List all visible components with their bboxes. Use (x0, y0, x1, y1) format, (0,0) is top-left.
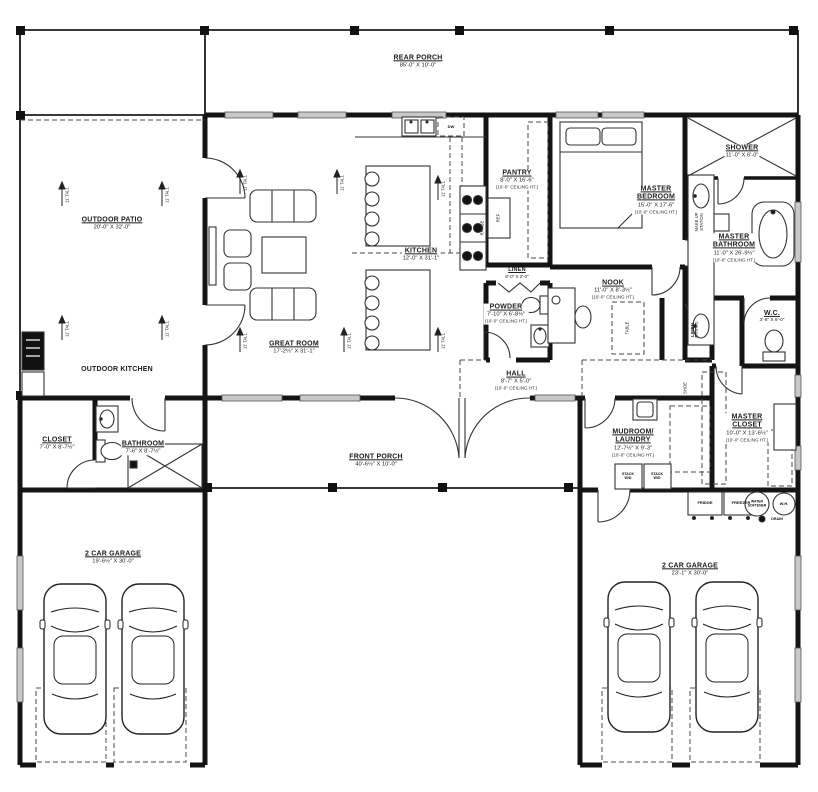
room-name: SHOWER (726, 144, 759, 152)
water-softener-label: WATER SOFTENER (747, 500, 768, 507)
room-dims: 20'-0" X 32'-0" (82, 225, 143, 232)
room-dims: 11'-0" X 6'-0" (726, 153, 759, 160)
stack-wd-label-1: STACK W/D (618, 473, 638, 481)
room-name: MASTER BATHROOM (711, 233, 757, 250)
room-note: (10'-0" CEILING HT.) (496, 185, 539, 191)
dishwasher-label: DW (448, 125, 455, 129)
height-marker-label: 11' TALL (66, 321, 71, 337)
room-dims: 11'-0" X 26'-9½" (711, 250, 757, 257)
plan-linework (0, 0, 818, 792)
room-label-closet: CLOSET 7'-0" X 8'-7½" (38, 436, 75, 451)
room-name: LINEN (505, 267, 528, 274)
sofa (250, 190, 316, 222)
fixture-label: RANGE (480, 221, 485, 236)
armchair (224, 230, 251, 257)
height-marker-label: 11' TALL (341, 175, 346, 191)
room-dims: 12'-0" X 31'-1" (403, 256, 440, 263)
room-name: SHOE (683, 382, 688, 394)
room-label-hall: HALL 8'-7" X 5'-0" (10'-0" CEILING HT.) (494, 371, 539, 392)
room-label-master-bathroom: MASTER BATHROOM 11'-0" X 26'-9½" (10'-0"… (710, 233, 758, 262)
desk-plant (552, 296, 560, 304)
room-note: (10'-0" CEILING HT.) (711, 257, 757, 263)
marker-text: 11' TALL (65, 321, 70, 337)
height-marker-label: 11' TALL (166, 187, 171, 203)
fixture-label: DW (448, 124, 455, 129)
room-label-master-closet: MASTER CLOSET 10'-0" X 13'-6½" (10'-0" C… (723, 413, 771, 442)
room-dims: 8'-0" X 16'-6" (496, 178, 539, 185)
room-dims: 3'-0 X 6'-0 (695, 321, 699, 338)
room-dims: 8'-7" X 5'-0" (495, 379, 538, 386)
armchair (224, 263, 251, 290)
room-name: OUTDOOR KITCHEN (81, 366, 153, 374)
fixture-label: REF (496, 214, 501, 222)
marker-text: 11' TALL (347, 333, 352, 349)
marker-text: 11' TALL (165, 321, 170, 337)
room-dims: 7'-6" X 8'-7½" (122, 449, 164, 456)
makeup-seat (714, 214, 729, 231)
room-dims: 40'-6½" X 10'-0" (349, 462, 403, 469)
room-dims: 10'-0" X 13'-6½" (724, 430, 770, 437)
pillow (566, 128, 600, 145)
water-heater-label: W.H. (780, 502, 789, 506)
room-dims: 8'-0" X 2'-0" (505, 274, 528, 279)
room-name: 2 CAR GARAGE (662, 562, 718, 570)
outdoor-counter (22, 372, 44, 396)
room-dims: 3'-6" X 6'-0" (760, 318, 785, 324)
furniture (22, 117, 796, 522)
room-label-linen: LINEN 8'-0" X 2'-0" (504, 267, 529, 279)
entry-double-door (395, 398, 530, 458)
room-label-mudroom: MUDROOM/ LAUNDRY 12'-7½" X 9'-3" (10'-0"… (608, 428, 658, 457)
grill (22, 332, 44, 370)
room-name: REAR PORCH (393, 54, 442, 62)
room-dims: 12'-7½" X 9'-3" (609, 445, 657, 452)
room-dims: 15'-0" X 17'-6" (633, 202, 679, 209)
room-dims: 19'-6½" X 30'-0" (85, 559, 141, 566)
desk (548, 288, 575, 343)
stack-wd-label-2: STACK W/D (647, 473, 667, 481)
room-note: (10'-0" CEILING HT.) (724, 437, 770, 443)
height-marker-label: 11' TALL (166, 321, 171, 337)
pillow (602, 128, 636, 145)
room-name: MUDROOM/ LAUNDRY (609, 428, 657, 445)
floor-plan: REAR PORCH 85'-0" X 10'-0" OUTDOOR PATIO… (0, 0, 818, 792)
marker-text: 11' TALL (165, 187, 170, 203)
shoe-label: SHOE (684, 382, 689, 394)
height-marker-label: 11' TALL (348, 333, 353, 349)
room-note: (10'-0" CEILING HT.) (495, 386, 538, 392)
room-name: KITCHEN (403, 247, 440, 255)
room-note: (10'-0" CEILING HT.) (485, 319, 528, 325)
closet-shelf (774, 404, 796, 450)
sofa (250, 288, 316, 320)
room-name: OUTDOOR PATIO (82, 216, 143, 224)
room-label-powder: POWDER 7'-10" X 6'-8½" (10'-0" CEILING H… (484, 304, 529, 325)
toilet-tank (763, 352, 785, 361)
room-dims: 17'-2½" X 31'-1" (269, 349, 319, 356)
marker-text: 11' TALL (441, 333, 446, 349)
room-label-shower: SHOWER 11'-0" X 6'-0" (725, 144, 760, 159)
makeup-station-label: MAKE UP STATION (695, 205, 705, 239)
desk-chair (575, 306, 591, 328)
room-label-master-bedroom: MASTER BEDROOM 15'-0" X 17'-6" (10'-0" C… (632, 185, 680, 214)
toilet (101, 443, 123, 460)
room-label-kitchen: KITCHEN 12'-0" X 31'-1" (402, 247, 441, 262)
room-label-garage-right: 2 CAR GARAGE 23'-1" X 30'-0" (661, 562, 719, 577)
linen-closet-label: LINEN 3'-0 X 6'-0 (690, 321, 700, 338)
nook-table-label: TABLE (626, 322, 631, 335)
height-marker-label: 11' TALL (244, 333, 249, 349)
room-label-great-room: GREAT ROOM 17'-2½" X 31'-1" (268, 340, 320, 355)
fixture-label: TABLE (625, 322, 630, 335)
room-label-garage-left: 2 CAR GARAGE 19'-6½" X 30'-0" (84, 550, 142, 565)
fixture-label: STACK W/D (622, 472, 634, 480)
room-label-outdoor-kitchen: OUTDOOR KITCHEN (80, 366, 154, 374)
marker-text: 11' TALL (243, 175, 248, 191)
height-marker-label: 11' TALL (244, 175, 249, 191)
room-label-nook: NOOK 11'-0" X 8'-3½" (10'-0" CEILING HT.… (591, 280, 636, 301)
marker-text: 11' TALL (243, 333, 248, 349)
fixture-label: DRAIN (771, 517, 782, 521)
room-name: HALL (495, 371, 538, 379)
room-name: PANTRY (496, 170, 539, 178)
fixture-label: FRIDGE (697, 500, 712, 505)
marker-text: 11' TALL (441, 181, 446, 197)
fixture-label: MAKE UP STATION (694, 213, 704, 232)
room-note: (10'-0" CEILING HT.) (592, 295, 635, 301)
ref-label: REF (497, 214, 502, 222)
fixture-label: W.H. (780, 501, 789, 506)
room-dims: 7'-10" X 6'-8½" (485, 312, 528, 319)
drain-label: DRAIN (771, 518, 782, 522)
height-marker-label: 11' TALL (442, 333, 447, 349)
room-note: (10'-0" CEILING HT.) (633, 209, 679, 215)
toilet (765, 330, 783, 352)
room-name: MASTER CLOSET (724, 413, 770, 430)
marker-text: 11' TALL (65, 187, 70, 203)
fixture-label: STACK W/D (651, 472, 663, 480)
room-label-outdoor-patio: OUTDOOR PATIO 20'-0" X 32'-0" (81, 216, 144, 231)
room-label-wc: W.C. 3'-6" X 6'-0" (759, 310, 786, 324)
room-label-bathroom: BATHROOM 7'-6" X 8'-7½" (121, 440, 165, 455)
height-marker-label: 11' TALL (442, 181, 447, 197)
cars (40, 582, 762, 734)
room-dims: 7'-0" X 8'-7½" (39, 445, 74, 452)
coffee-table (262, 237, 306, 273)
room-note: (10'-0" CEILING HT.) (609, 452, 657, 458)
room-name: MASTER BEDROOM (633, 185, 679, 202)
room-dims: 23'-1" X 30'-0" (662, 571, 718, 578)
fixture-label: WATER SOFTENER (748, 499, 766, 507)
room-label-rear-porch: REAR PORCH 85'-0" X 10'-0" (392, 54, 443, 69)
room-label-front-porch: FRONT PORCH 40'-6½" X 10'-0" (348, 453, 404, 468)
room-dims: 11'-0" X 8'-3½" (592, 288, 635, 295)
range-label: RANGE (481, 221, 486, 236)
floor-drain (759, 516, 765, 522)
media-console (209, 227, 216, 285)
room-label-pantry: PANTRY 8'-0" X 16'-6" (10'-0" CEILING HT… (495, 170, 540, 191)
fridge-label: FRIDGE (697, 501, 712, 505)
room-dims: 85'-0" X 10'-0" (393, 63, 442, 70)
marker-text: 11' TALL (340, 175, 345, 191)
height-marker-label: 11' TALL (66, 187, 71, 203)
